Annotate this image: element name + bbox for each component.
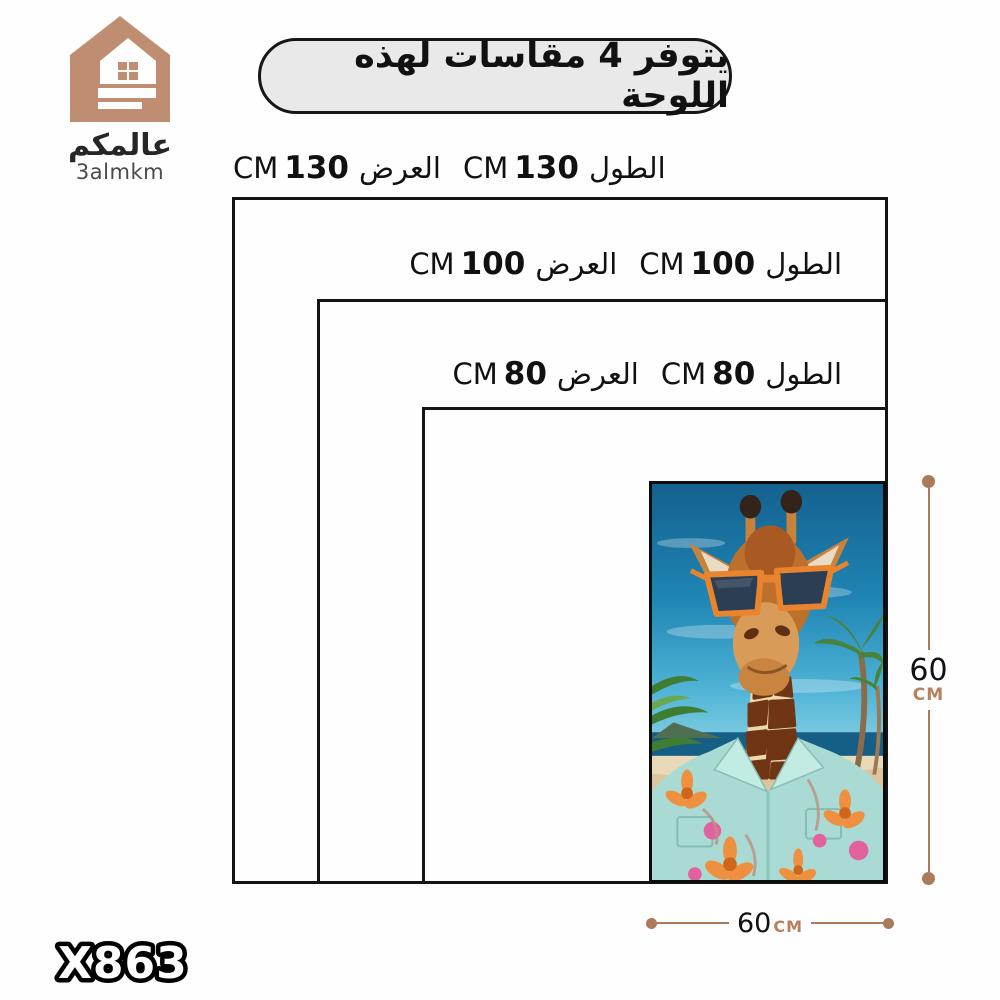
size-label-130: الطول 130 CM العرض 130 CM <box>233 150 666 186</box>
giraffe-artwork-canvas <box>649 481 886 883</box>
height-dimension-label: 60 CM <box>909 656 947 705</box>
width-dimension-label: 60 CM <box>737 908 803 939</box>
house-logo-icon <box>70 16 170 122</box>
height-unit: CM <box>909 686 947 705</box>
dimension-line-left <box>657 922 729 924</box>
length-unit: CM <box>463 151 508 185</box>
width-word: العرض <box>557 357 639 391</box>
width-unit: CM <box>409 247 454 281</box>
product-code: X863 <box>46 930 226 996</box>
width-value: 100 <box>461 246 526 282</box>
width-unit: CM <box>233 151 278 185</box>
width-word: العرض <box>359 151 441 185</box>
banner-text: يتوفر 4 مقاسات لهذه اللوحة <box>261 36 729 116</box>
width-unit: CM <box>773 917 803 936</box>
width-value: 80 <box>504 356 547 392</box>
length-value: 100 <box>691 246 756 282</box>
width-dimension-indicator: 60 CM <box>646 910 894 936</box>
size-label-80: الطول 80 CM العرض 80 CM <box>452 356 842 392</box>
width-word: العرض <box>535 247 617 281</box>
product-code-text: X863 <box>58 938 188 989</box>
brand-name-latin: 3almkm <box>50 162 190 183</box>
width-unit: CM <box>452 357 497 391</box>
length-word: الطول <box>765 357 842 391</box>
length-value: 130 <box>514 150 579 186</box>
width-value: 130 <box>284 150 349 186</box>
dimension-dot-left <box>646 918 657 929</box>
dimension-line-upper <box>928 488 930 650</box>
height-value: 60 <box>909 656 947 686</box>
length-unit: CM <box>639 247 684 281</box>
dimension-line-lower <box>928 710 930 872</box>
height-dimension-indicator: 60 CM <box>921 475 936 885</box>
brand-name-arabic: عالمكم <box>50 130 190 162</box>
dimension-dot-bottom <box>922 872 935 885</box>
dimension-dot-top <box>922 475 935 488</box>
sizes-available-banner: يتوفر 4 مقاسات لهذه اللوحة <box>258 38 732 114</box>
width-value: 60 <box>737 908 771 939</box>
size-label-100: الطول 100 CM العرض 100 CM <box>409 246 842 282</box>
brand-logo: عالمكم 3almkm <box>50 16 190 183</box>
length-word: الطول <box>589 151 666 185</box>
length-word: الطول <box>765 247 842 281</box>
dimension-dot-right <box>883 918 894 929</box>
length-unit: CM <box>661 357 706 391</box>
giraffe-artwork-illustration <box>652 484 883 880</box>
length-value: 80 <box>712 356 755 392</box>
dimension-line-right <box>811 922 883 924</box>
